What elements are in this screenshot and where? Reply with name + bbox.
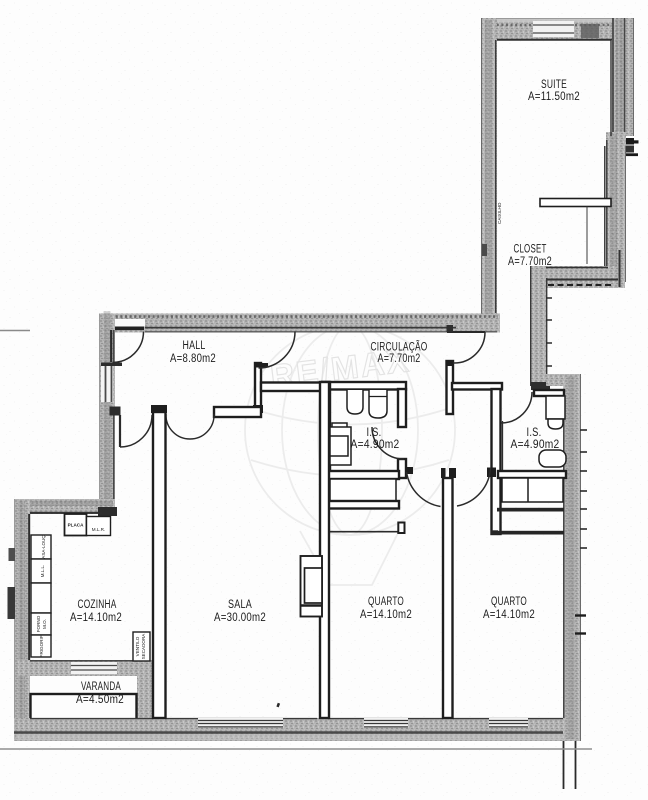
svg-text:A=4.90m2: A=4.90m2	[351, 439, 400, 451]
svg-text:QUARTO: QUARTO	[491, 596, 527, 608]
svg-text:SECADORA: SECADORA	[141, 633, 146, 660]
svg-text:FRIGORIF.: FRIGORIF.	[39, 635, 44, 658]
svg-text:A=14.10m2: A=14.10m2	[70, 612, 122, 624]
svg-text:A=4.50m2: A=4.50m2	[76, 694, 124, 706]
svg-text:A=7.70m2: A=7.70m2	[508, 256, 552, 268]
svg-text:A=11.50m2: A=11.50m2	[528, 91, 580, 103]
svg-text:CAIXILHO: CAIXILHO	[497, 202, 502, 224]
svg-text:A=4.90m2: A=4.90m2	[511, 439, 560, 451]
svg-text:ASA-LOUÇ: ASA-LOUÇ	[41, 535, 46, 559]
svg-text:M.L.L.: M.L.L.	[40, 565, 45, 578]
svg-text:I.S.: I.S.	[367, 427, 382, 439]
svg-text:A=7.70m2: A=7.70m2	[378, 353, 421, 365]
svg-text:HALL: HALL	[183, 340, 206, 352]
svg-text:PLACA: PLACA	[68, 523, 85, 528]
svg-text:FORNO: FORNO	[36, 615, 41, 632]
svg-text:I.S.: I.S.	[527, 427, 542, 439]
svg-text:A=14.10m2: A=14.10m2	[360, 609, 412, 621]
svg-text:M.O.: M.O.	[42, 619, 47, 629]
svg-text:A=8.80m2: A=8.80m2	[170, 353, 216, 365]
svg-text:COZINHA: COZINHA	[78, 599, 117, 611]
svg-text:VARANDA: VARANDA	[81, 681, 121, 693]
svg-text:A=14.10m2: A=14.10m2	[483, 609, 535, 621]
svg-text:SALA: SALA	[228, 599, 252, 611]
svg-text:M.L.R.: M.L.R.	[92, 527, 106, 532]
svg-text:CLOSET: CLOSET	[514, 244, 547, 256]
svg-text:QUARTO: QUARTO	[368, 596, 404, 608]
svg-text:CIRCULAÇÃO: CIRCULAÇÃO	[371, 341, 428, 354]
svg-text:VENTILO: VENTILO	[135, 636, 140, 656]
svg-text:SUITE: SUITE	[541, 79, 567, 91]
svg-text:A=30.00m2: A=30.00m2	[214, 612, 266, 624]
